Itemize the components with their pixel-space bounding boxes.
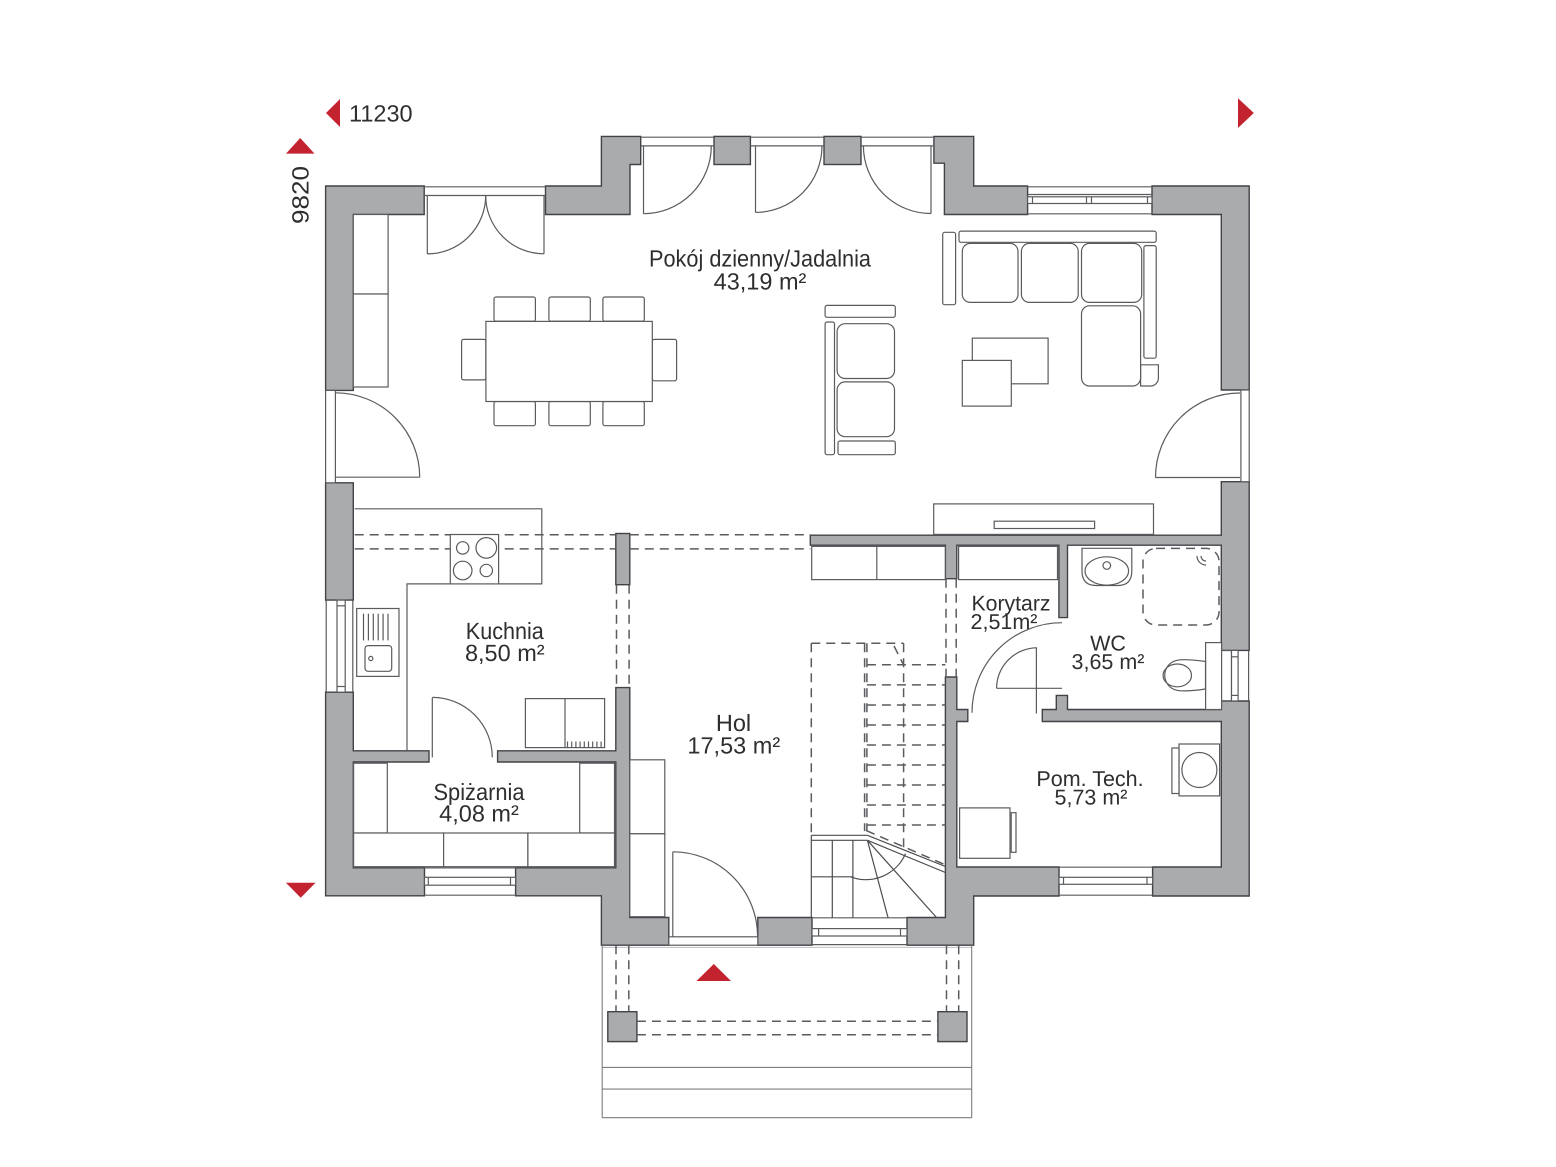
svg-text:11230: 11230 <box>349 101 413 127</box>
svg-text:3,65 m²: 3,65 m² <box>1072 650 1145 674</box>
svg-text:2,51m²: 2,51m² <box>971 610 1038 634</box>
svg-text:9820: 9820 <box>288 166 314 224</box>
svg-text:5,73 m²: 5,73 m² <box>1055 786 1128 810</box>
svg-text:8,50 m²: 8,50 m² <box>465 640 545 666</box>
svg-text:17,53 m²: 17,53 m² <box>687 733 780 759</box>
svg-text:4,08 m²: 4,08 m² <box>439 801 519 827</box>
svg-text:43,19 m²: 43,19 m² <box>714 269 807 295</box>
